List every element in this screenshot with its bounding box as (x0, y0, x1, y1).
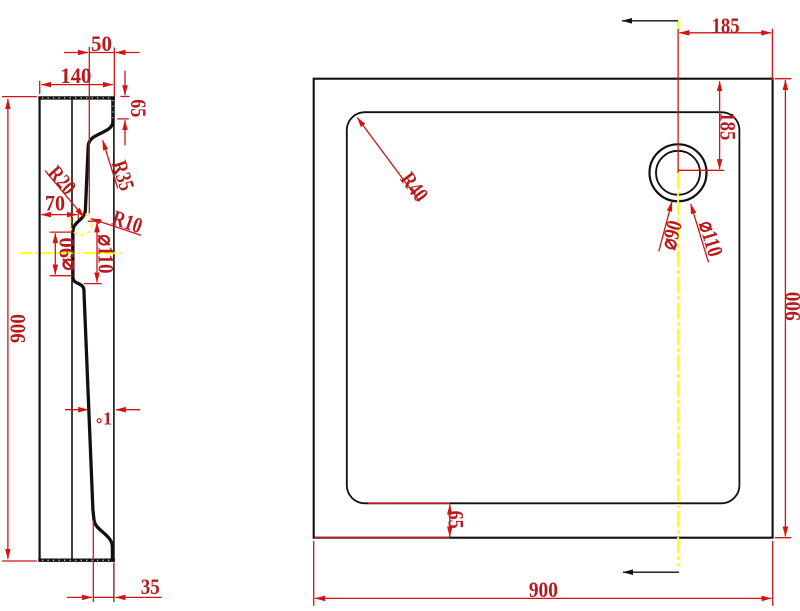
svg-text:35: 35 (141, 574, 160, 599)
svg-text:900: 900 (529, 577, 558, 602)
svg-text:1: 1 (103, 409, 112, 429)
svg-text:65: 65 (444, 511, 469, 529)
svg-text:⌀90: ⌀90 (54, 238, 79, 271)
svg-text:900: 900 (780, 292, 800, 321)
svg-text:185: 185 (715, 112, 740, 140)
svg-text:⌀110: ⌀110 (93, 235, 118, 274)
svg-text:900: 900 (5, 314, 30, 343)
svg-text:50: 50 (91, 31, 112, 56)
svg-text:70: 70 (45, 191, 65, 216)
svg-text:185: 185 (712, 13, 740, 38)
svg-text:140: 140 (60, 63, 91, 88)
svg-text:65: 65 (126, 99, 151, 117)
